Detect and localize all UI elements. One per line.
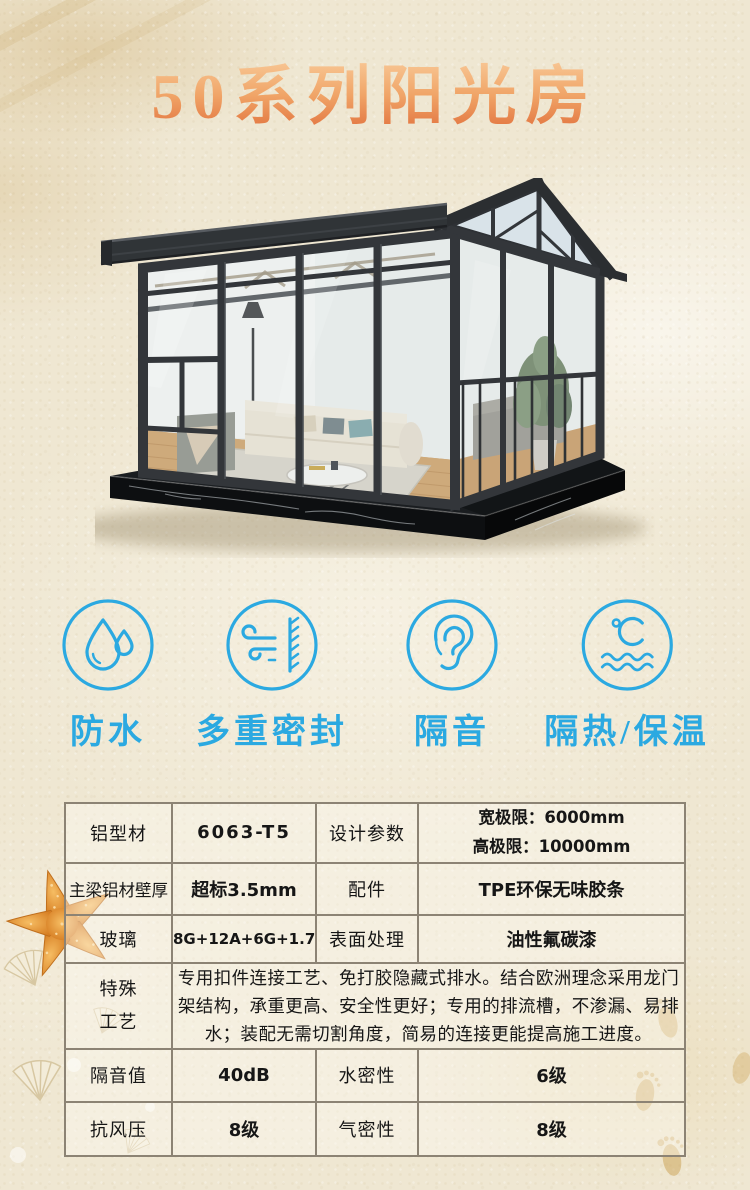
page-title: 50系列阳光房 — [0, 60, 750, 134]
spec-cell: 表面处理 — [316, 915, 418, 963]
spec-cell: 超标3.5mm — [172, 863, 316, 915]
feature-insulation: 隔热/保温 — [544, 598, 709, 753]
ear-icon — [405, 598, 499, 692]
spec-cell: TPE环保无味胶条 — [418, 863, 685, 915]
spec-cell: 水密性 — [316, 1049, 418, 1102]
spec-cell: 气密性 — [316, 1102, 418, 1156]
spec-table: 铝型材 6063-T5 设计参数 宽极限：6000mm 高极限：10000mm … — [64, 802, 686, 1157]
spec-cell: 配件 — [316, 863, 418, 915]
feature-label: 隔音 — [414, 704, 490, 753]
feature-label: 隔热/保温 — [544, 704, 709, 753]
spec-cell: 6级 — [418, 1049, 685, 1102]
spec-cell: 铝型材 — [65, 803, 172, 863]
spec-cell: 抗风压 — [65, 1102, 172, 1156]
spec-cell: 40dB — [172, 1049, 316, 1102]
table-row: 特殊 工艺 专用扣件连接工艺、免打胶隐藏式排水。结合欧洲理念采用龙门架结构，承重… — [65, 963, 685, 1049]
feature-waterproof: 防水 — [61, 598, 155, 753]
table-row: 玻璃 8G+12A+6G+1.76PVB+6G 表面处理 油性氟碳漆 — [65, 915, 685, 963]
wind-seal-icon — [225, 598, 319, 692]
spec-cell: 宽极限：6000mm 高极限：10000mm — [418, 803, 685, 863]
water-drop-icon — [61, 598, 155, 692]
table-row: 隔音值 40dB 水密性 6级 — [65, 1049, 685, 1102]
spec-cell: 玻璃 — [65, 915, 172, 963]
feature-soundproof: 隔音 — [405, 598, 499, 753]
feature-label: 防水 — [70, 704, 146, 753]
spec-cell: 设计参数 — [316, 803, 418, 863]
spec-cell: 8级 — [172, 1102, 316, 1156]
spec-cell: 6063-T5 — [172, 803, 316, 863]
table-row: 铝型材 6063-T5 设计参数 宽极限：6000mm 高极限：10000mm — [65, 803, 685, 863]
temperature-icon — [580, 598, 674, 692]
spec-cell: 主梁铝材壁厚 — [65, 863, 172, 915]
sunroom-image — [95, 178, 655, 558]
table-row: 主梁铝材壁厚 超标3.5mm 配件 TPE环保无味胶条 — [65, 863, 685, 915]
spec-cell: 专用扣件连接工艺、免打胶隐藏式排水。结合欧洲理念采用龙门架结构，承重更高、安全性… — [172, 963, 685, 1049]
poster-page: 50系列阳光房 — [0, 0, 750, 1190]
spec-cell: 隔音值 — [65, 1049, 172, 1102]
spec-cell: 8G+12A+6G+1.76PVB+6G — [172, 915, 316, 963]
table-row: 抗风压 8级 气密性 8级 — [65, 1102, 685, 1156]
spec-cell: 8级 — [418, 1102, 685, 1156]
spec-cell: 油性氟碳漆 — [418, 915, 685, 963]
feature-multi-seal: 多重密封 — [196, 598, 348, 753]
feature-label: 多重密封 — [196, 704, 348, 753]
spec-cell: 特殊 工艺 — [65, 963, 172, 1049]
